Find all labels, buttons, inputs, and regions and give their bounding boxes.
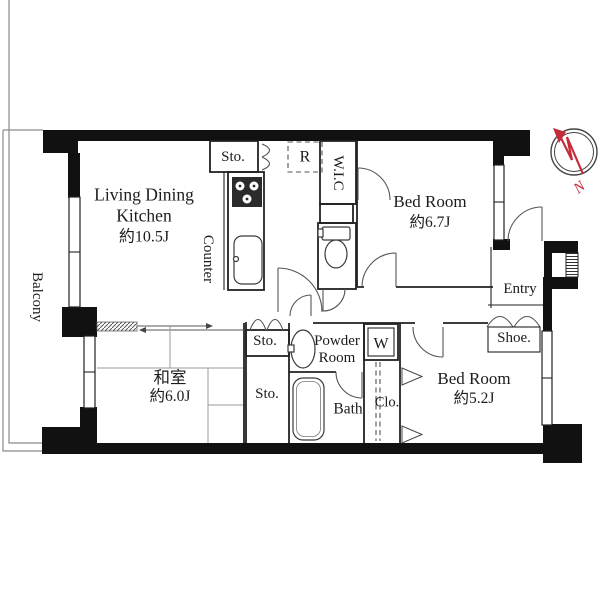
label-shoe: Shoe. <box>497 329 531 347</box>
folding-door-hall-storage <box>250 320 283 331</box>
powder-line1: Powder <box>314 333 360 350</box>
label-counter: Counter <box>199 235 217 283</box>
washbasin-icon <box>288 330 315 368</box>
ldk-name-line1: Living Dining <box>94 185 194 206</box>
compass-icon: N <box>551 128 597 198</box>
ldk-name-line2: Kitchen <box>94 206 194 227</box>
label-storage-kitchen: Sto. <box>221 148 245 166</box>
label-entry: Entry <box>503 280 536 298</box>
label-bath: Bath <box>333 401 362 420</box>
washitsu-name: 和室 <box>150 368 191 387</box>
bedroom1-name: Bed Room <box>393 191 466 212</box>
folding-door-kitchen-storage <box>262 144 270 170</box>
bedroom1-size: 約6.7J <box>393 212 466 233</box>
label-storage-lower: Sto. <box>255 385 279 403</box>
label-refrigerator: R <box>300 147 311 166</box>
folding-door-shoe <box>487 317 540 328</box>
window-bedroom1 <box>494 165 504 240</box>
powder-line2: Room <box>314 350 360 367</box>
label-ldk: Living Dining Kitchen 約10.5J <box>94 185 194 248</box>
bedroom2-size: 約5.2J <box>437 389 510 409</box>
door-powder <box>290 295 311 316</box>
bedroom2-name: Bed Room <box>437 369 510 389</box>
label-bedroom2: Bed Room 約5.2J <box>437 369 510 409</box>
window-bedroom2 <box>542 331 552 425</box>
compass-north-label: N <box>570 178 589 198</box>
floor-plan-drawing: N <box>0 0 603 600</box>
door-bedroom1-entry <box>508 207 542 241</box>
ldk-size: 約10.5J <box>94 227 194 248</box>
floor-plan: N Living Dining Kitchen 約10.5J Counter S… <box>0 0 603 600</box>
entrance-door <box>566 253 578 277</box>
label-balcony: Balcony <box>28 272 46 322</box>
label-storage-hall: Sto. <box>253 332 277 350</box>
door-toilet <box>323 289 345 311</box>
stove-icon <box>232 177 262 207</box>
door-bath <box>336 372 362 398</box>
window-balcony-ldk <box>69 197 80 307</box>
door-ldk <box>278 268 322 312</box>
bathtub-icon <box>293 378 324 440</box>
label-washer: W <box>373 334 388 353</box>
balcony-outline <box>3 0 43 451</box>
door-bedroom2 <box>413 327 443 357</box>
door-bedroom1-hall <box>362 253 396 287</box>
label-wic: W.I.C <box>329 155 347 190</box>
label-bedroom1: Bed Room 約6.7J <box>393 191 466 233</box>
washitsu-size: 約6.0J <box>150 387 191 406</box>
toilet-icon <box>318 227 350 268</box>
label-closet: Clo. <box>375 394 400 411</box>
window-balcony-washitsu <box>84 336 95 408</box>
door-wic <box>358 168 390 200</box>
label-washitsu: 和室 約6.0J <box>150 368 191 406</box>
kitchen-sink-icon <box>234 236 263 284</box>
label-powder-room: Powder Room <box>314 333 360 367</box>
